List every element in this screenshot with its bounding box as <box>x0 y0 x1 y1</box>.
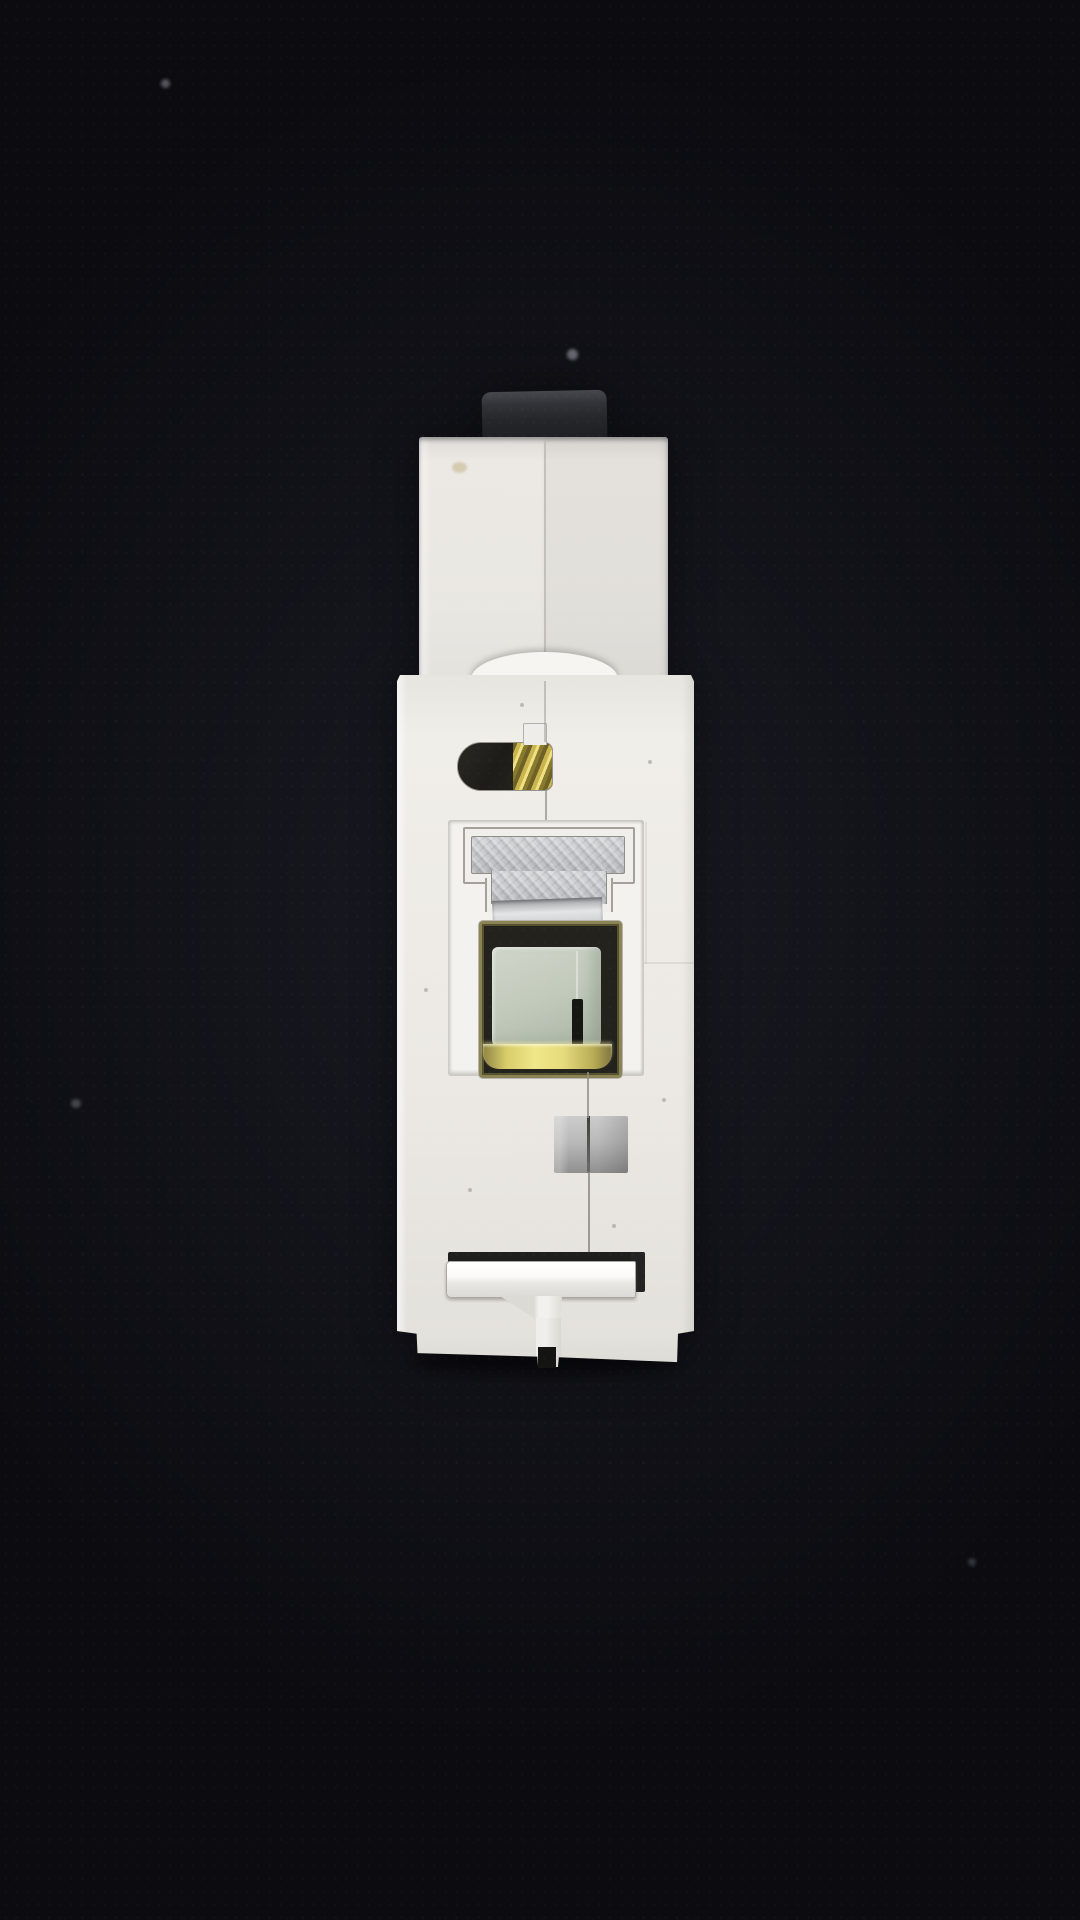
latch-window <box>554 1116 628 1173</box>
slot-cavity-dark <box>458 743 516 790</box>
metal-clamp-t-bar <box>471 836 625 874</box>
latch-stem-slit <box>538 1347 556 1368</box>
circuit-breaker <box>0 0 1080 1920</box>
mould-seam <box>545 789 547 822</box>
brass-screw-threads <box>513 743 552 790</box>
terminal-screw-slot <box>457 742 553 791</box>
plastic-dust-speck <box>662 1098 666 1102</box>
din-release-latch-bar <box>446 1261 636 1298</box>
mould-seam <box>588 1172 590 1254</box>
plastic-dust-speck <box>648 760 652 764</box>
plastic-dust-speck <box>612 1224 616 1228</box>
surface-stain <box>452 462 467 473</box>
mould-seam-top <box>544 440 546 656</box>
plastic-dust-speck <box>520 703 524 707</box>
photo-background <box>0 0 1080 1920</box>
brass-glow-strip <box>483 1044 612 1069</box>
mould-seam <box>587 1072 589 1118</box>
terminal-block-green <box>492 947 601 1051</box>
plastic-dust-speck <box>424 988 428 992</box>
panel-edge-line <box>644 962 694 964</box>
panel-edge-line <box>645 822 647 964</box>
din-rail-clip <box>481 390 607 443</box>
terminal-block-divider <box>576 951 578 1001</box>
latch-window-seam <box>587 1116 590 1173</box>
mould-seam <box>544 681 546 742</box>
plastic-dust-speck <box>468 1188 472 1192</box>
